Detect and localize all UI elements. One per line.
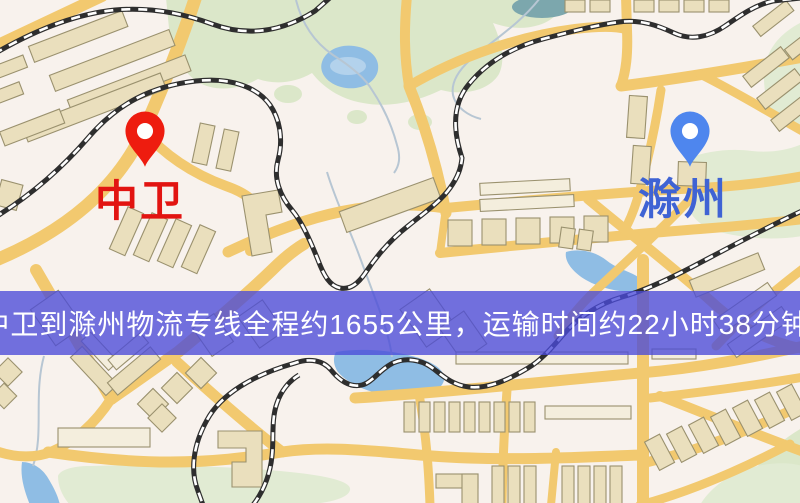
map-canvas: 中卫 滁州 中卫到滁州物流专线全程约1655公里，运输时间约22小时38分钟. <box>0 0 800 503</box>
origin-label: 中卫 <box>95 181 185 224</box>
route-info-text: 中卫到滁州物流专线全程约1655公里，运输时间约22小时38分钟. <box>0 303 800 343</box>
destination-label: 滁州 <box>638 179 728 222</box>
map-artwork <box>0 0 800 503</box>
route-info-banner: 中卫到滁州物流专线全程约1655公里，运输时间约22小时38分钟. <box>0 291 800 355</box>
destination-pin-icon <box>667 101 713 168</box>
origin-pin-icon <box>122 101 168 168</box>
